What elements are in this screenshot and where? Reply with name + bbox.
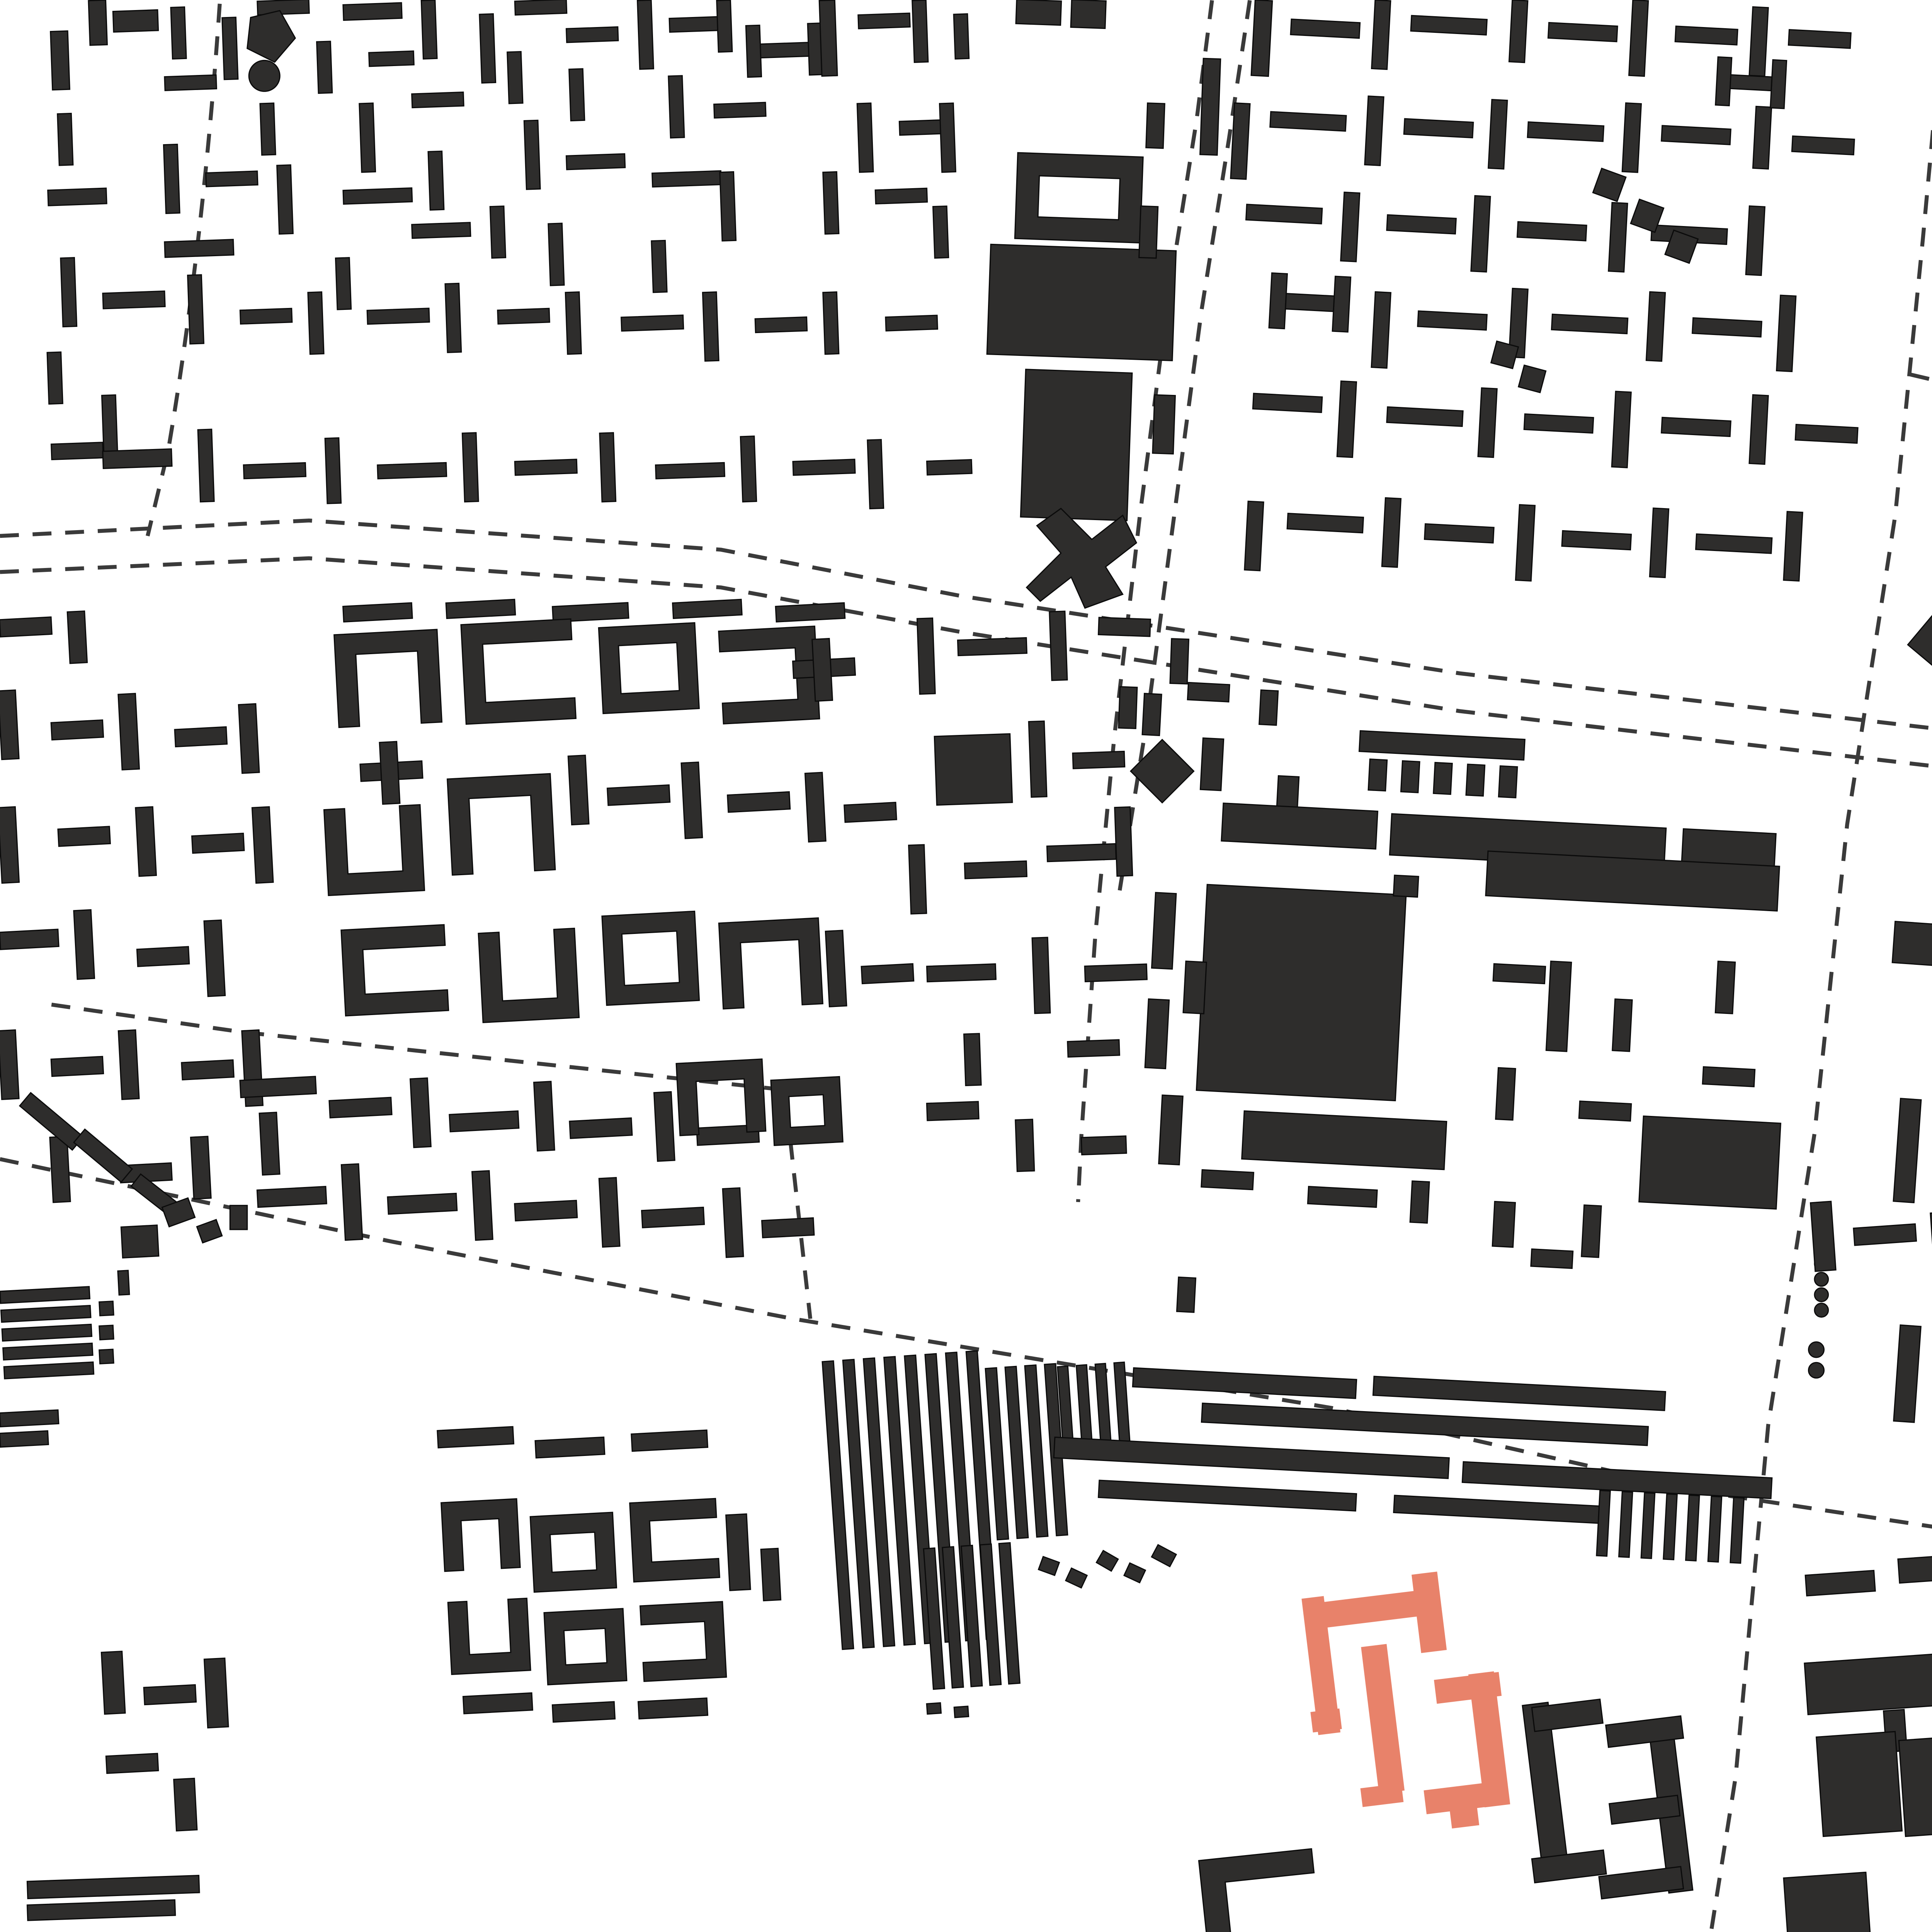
highlighted-building-complex <box>1301 1571 1510 1828</box>
map-canvas <box>0 0 1932 1932</box>
building-footprints <box>0 0 1932 1932</box>
city-figure-ground-map <box>0 0 1932 1932</box>
